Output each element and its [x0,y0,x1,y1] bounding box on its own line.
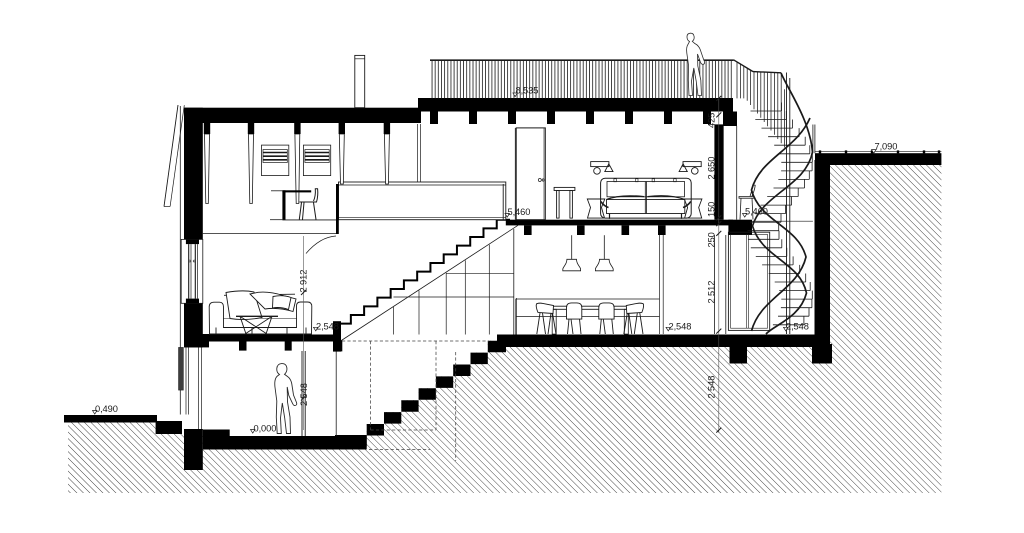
svg-text:0,000: 0,000 [254,424,277,434]
svg-text:250: 250 [707,232,717,247]
svg-text:7,090: 7,090 [875,142,898,152]
svg-text:2,548: 2,548 [316,322,339,332]
svg-text:425: 425 [707,113,717,128]
svg-text:150: 150 [707,202,717,217]
svg-text:2 650: 2 650 [707,157,717,180]
svg-text:2,548: 2,548 [669,322,692,332]
svg-text:2,548: 2,548 [786,322,809,332]
svg-text:2 512: 2 512 [707,281,717,304]
svg-text:8,535: 8,535 [516,86,539,96]
svg-text:2 548: 2 548 [707,376,717,399]
svg-text:5,460: 5,460 [745,207,768,217]
svg-text:2 548: 2 548 [299,383,309,406]
svg-text:0,490: 0,490 [95,404,118,414]
svg-text:5,460: 5,460 [508,207,531,217]
svg-text:2 912: 2 912 [299,270,309,293]
